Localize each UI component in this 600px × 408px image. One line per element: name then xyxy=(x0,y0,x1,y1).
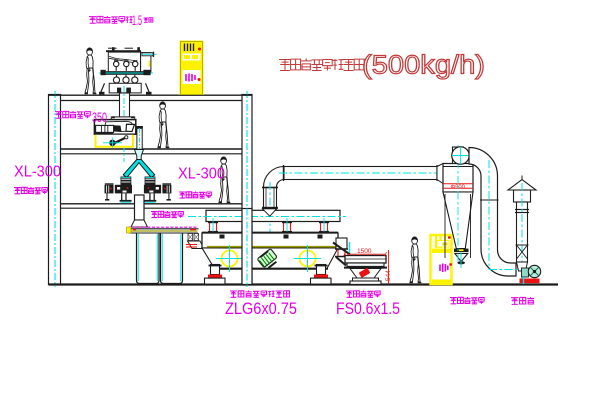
svg-text:XL-300: XL-300 xyxy=(14,164,61,181)
svg-text:350: 350 xyxy=(92,110,107,125)
svg-text:1500: 1500 xyxy=(357,248,372,255)
svg-text:(500kg/h): (500kg/h) xyxy=(362,52,485,80)
svg-text:1.5: 1.5 xyxy=(132,13,142,28)
svg-text:XL-300: XL-300 xyxy=(178,166,225,183)
svg-text:FS0.6x1.5: FS0.6x1.5 xyxy=(336,299,400,318)
svg-text:ZLG6x0.75: ZLG6x0.75 xyxy=(225,299,297,318)
svg-text:544: 544 xyxy=(385,270,392,281)
